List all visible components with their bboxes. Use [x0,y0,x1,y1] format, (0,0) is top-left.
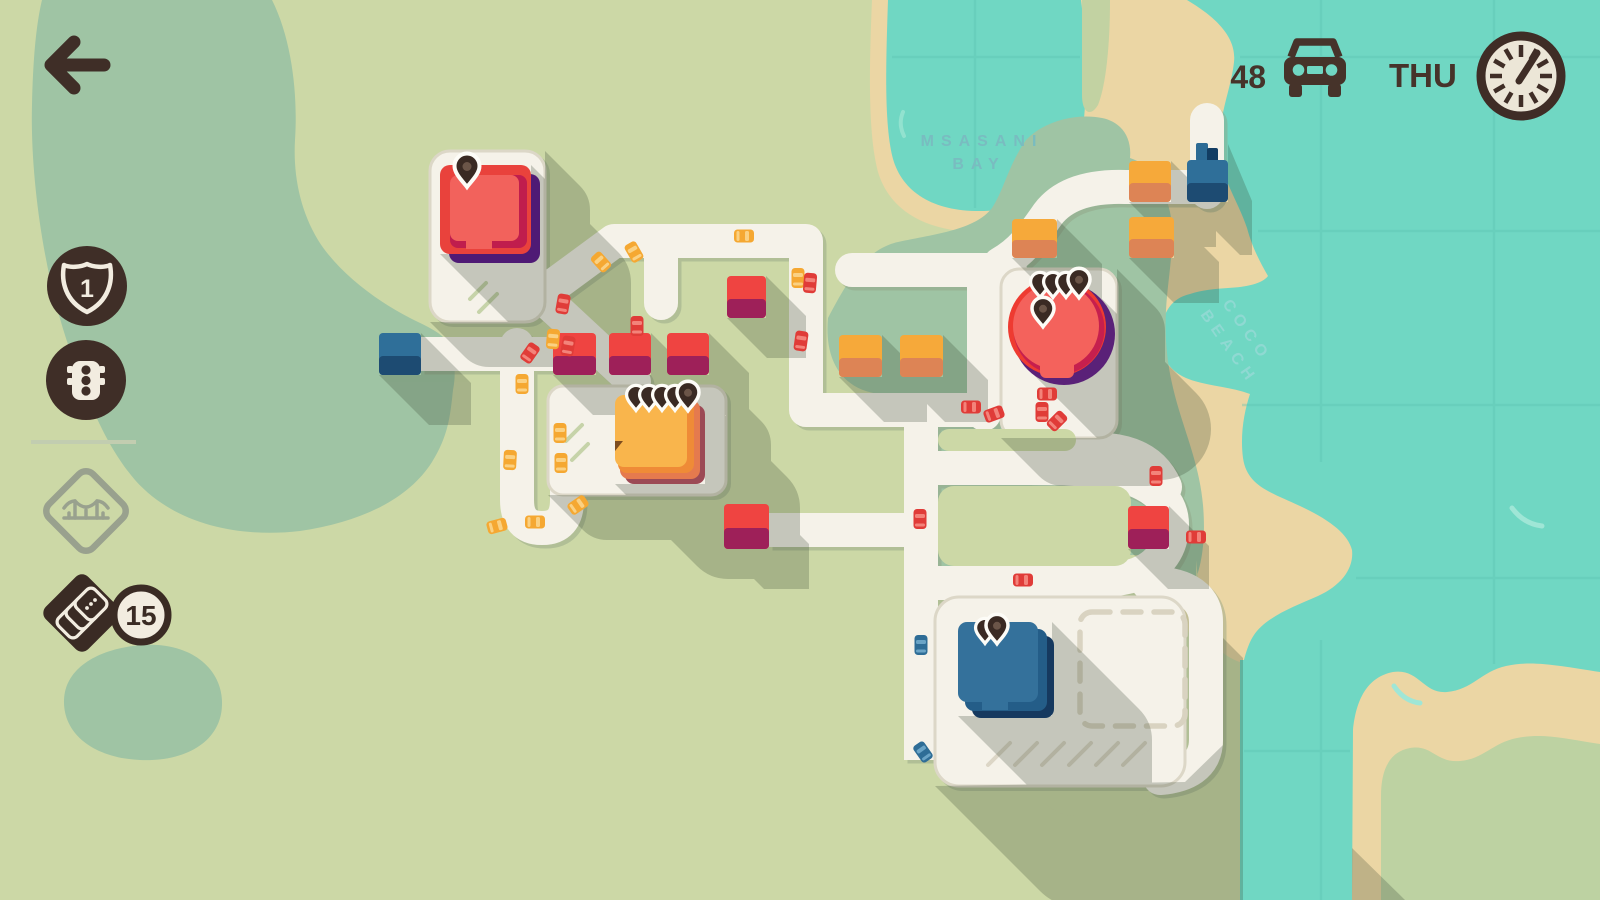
svg-text:BAY: BAY [952,156,1005,173]
svg-text:1: 1 [80,275,94,303]
svg-text:48: 48 [1230,59,1266,95]
svg-text:THU: THU [1389,57,1457,94]
svg-text:MSASANI: MSASANI [921,133,1044,150]
svg-text:15: 15 [125,600,156,631]
